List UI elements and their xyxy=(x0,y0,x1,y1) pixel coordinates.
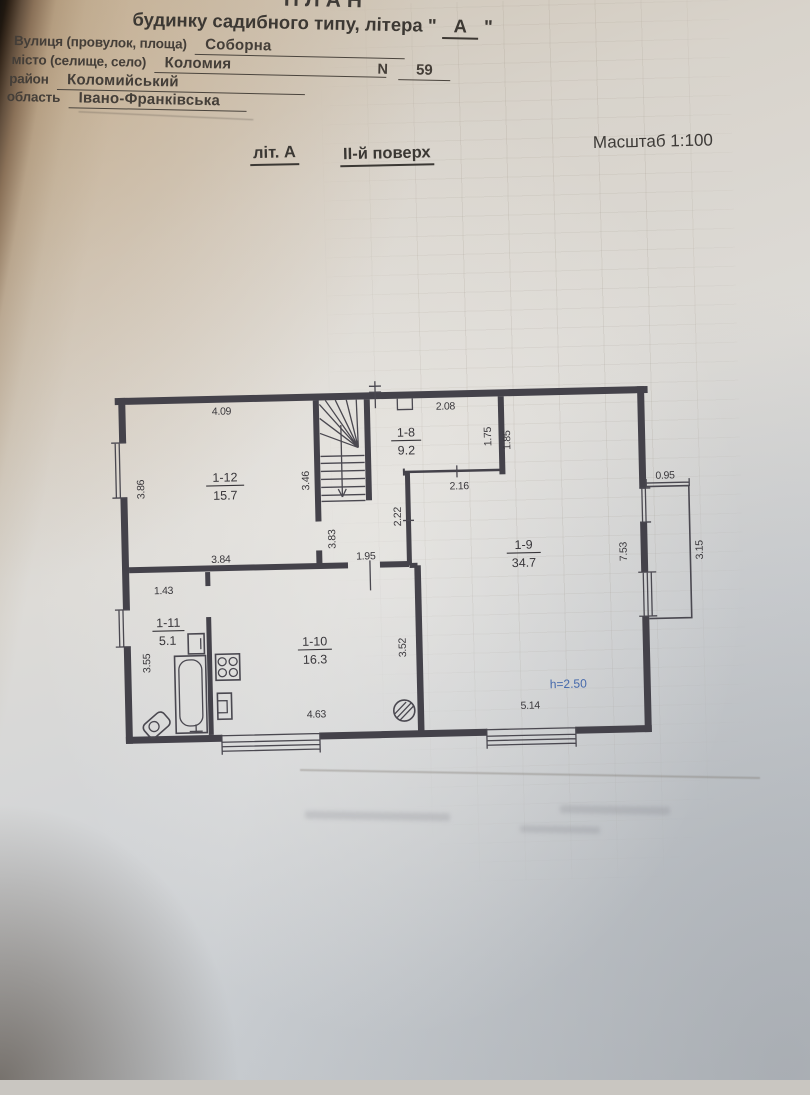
dim-r8-top: 2.08 xyxy=(436,400,456,412)
dim-hall-right: 2.22 xyxy=(392,506,404,526)
room-label-1-12: 1-12 15.7 xyxy=(206,470,245,503)
room-label-1-8: 1-8 9.2 xyxy=(391,425,422,458)
dim-r9-bottom: 5.14 xyxy=(520,700,540,712)
window-r9-bottom xyxy=(487,727,576,749)
window-r9-right xyxy=(639,488,651,522)
wall-r8-bottom xyxy=(404,470,501,472)
room-area: 15.7 xyxy=(213,488,238,503)
room-area: 34.7 xyxy=(512,556,537,571)
dim-r12-left: 3.86 xyxy=(135,479,147,499)
floor-plan-drawing: 1-12 15.7 1-8 9.2 1-9 34.7 1-10 16.3 1-1… xyxy=(0,0,810,1080)
room-label-1-10: 1-10 16.3 xyxy=(298,634,333,667)
balcony-door xyxy=(638,572,657,616)
wall-r12-bottom xyxy=(129,564,409,570)
dim-balcony-top: 0.95 xyxy=(655,469,675,481)
window-r12-left xyxy=(111,443,127,498)
dim-r12-bottom: 3.84 xyxy=(211,553,231,565)
dim-balcony-right: 3.15 xyxy=(694,540,706,560)
wall-stairwell xyxy=(367,399,369,500)
outer-wall-left xyxy=(122,398,130,744)
dim-r8-bottom: 2.16 xyxy=(449,480,469,492)
room-area: 9.2 xyxy=(398,443,416,457)
boiler xyxy=(394,700,415,721)
dim-r12-right: 3.46 xyxy=(300,471,312,491)
chimney-niche xyxy=(397,398,412,409)
dim-r11-top: 1.43 xyxy=(154,585,174,597)
dim-r9-right: 7.53 xyxy=(618,541,630,561)
ceiling-height-note: h=2.50 xyxy=(550,676,588,691)
stair-winders xyxy=(319,400,358,449)
wall-hall-r9 xyxy=(407,472,417,565)
dim-ticks xyxy=(368,465,460,590)
dim-hall-left: 3.83 xyxy=(326,529,338,549)
room-id: 1-12 xyxy=(212,470,237,485)
room-id: 1-9 xyxy=(514,538,532,552)
wall-r12-hall xyxy=(316,401,320,566)
stair-direction-arrow xyxy=(337,425,347,497)
bathtub xyxy=(175,656,208,734)
wall-r10-r9 xyxy=(418,565,422,733)
window-r10-bottom xyxy=(222,733,320,755)
dim-r10-right: 3.52 xyxy=(397,637,409,657)
room-label-1-9: 1-9 34.7 xyxy=(506,537,541,570)
room-label-1-11: 1-11 5.1 xyxy=(152,616,185,649)
washbasin xyxy=(188,634,204,654)
dim-r10-bottom: 4.63 xyxy=(307,708,327,720)
room-area: 5.1 xyxy=(159,634,177,648)
toilet xyxy=(141,710,172,740)
wall-r11-r10 xyxy=(208,572,212,735)
room-id: 1-11 xyxy=(156,616,180,631)
staircase xyxy=(319,399,365,501)
room-id: 1-8 xyxy=(397,425,415,439)
dim-r9-upper-left: 1.85 xyxy=(501,430,513,450)
outer-wall-right xyxy=(641,386,649,732)
outer-wall-top xyxy=(115,389,648,401)
kitchen-sink xyxy=(217,693,232,719)
window-r11-left xyxy=(115,610,131,647)
room-area: 16.3 xyxy=(303,652,328,667)
dim-r12-top: 4.09 xyxy=(212,405,232,417)
balcony-outline xyxy=(646,486,691,619)
dim-hall-bottom: 1.95 xyxy=(356,550,376,562)
dim-r11-left: 3.55 xyxy=(141,653,153,673)
dim-r8-right: 1.75 xyxy=(482,426,494,446)
room-id: 1-10 xyxy=(302,634,327,649)
stove xyxy=(215,654,240,681)
